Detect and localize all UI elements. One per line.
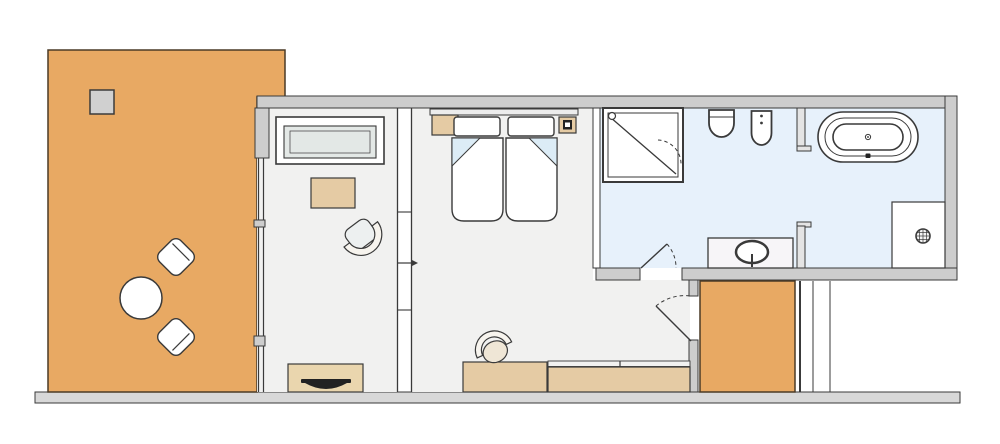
toilet-icon [709,110,734,137]
entry-wall-stub-top [689,280,698,296]
bathtub-icon [818,112,918,162]
bath-divider-stub-top [797,108,805,150]
tub-tap-icon [866,154,871,159]
headboard [430,109,578,115]
window-mullion [254,220,265,227]
pillow-icon [508,117,554,136]
planter-icon [90,90,114,114]
coffee-table-icon [311,178,355,208]
bench-sofa-icon [463,361,690,392]
bath-bottom-wall-right [682,268,957,280]
bath-divider-stub-bottom [797,226,805,268]
walk-in-shower [892,202,945,268]
shower-stall-icon [603,108,683,182]
twin-bed-icon [452,117,503,221]
sofa-icon [276,117,384,164]
twin-bed-icon [506,117,557,221]
bidet-icon [752,111,772,145]
entry-wood-floor [700,281,795,392]
entry-side-lines [800,281,830,392]
floor-plan-drawing [0,0,1000,444]
floor-plan [0,0,1000,444]
vanity-sink-icon [708,238,793,268]
bath-bottom-wall-left [596,268,640,280]
bedroom-bath-wall [593,108,600,268]
bath-divider-jamb [797,146,811,151]
window-wall-stub [255,108,269,158]
terrace-table-icon [120,277,162,319]
baseline-wall [35,392,960,403]
pillow-icon [454,117,500,136]
right-wall [945,96,957,280]
terrace [48,50,285,392]
walk-in-shower-drain-icon [916,229,930,243]
window-mullion [254,336,265,346]
top-wall [257,96,957,108]
tv-icon [301,379,351,383]
phone-panel-icon [559,117,576,133]
shower-head-icon [609,113,616,120]
tv-console-icon [288,364,363,392]
